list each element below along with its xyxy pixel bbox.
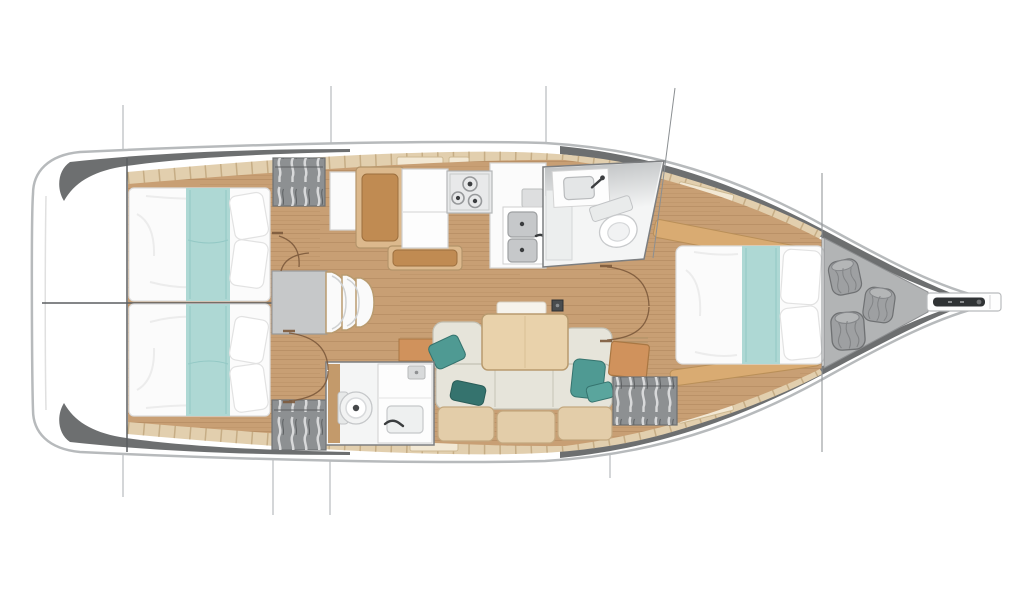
mast-post [552, 300, 563, 311]
seat-cushion [362, 174, 398, 241]
galley-appliance [522, 189, 543, 207]
toilet-drain [353, 405, 359, 411]
pillow [228, 191, 269, 240]
hanging-locker-starboard [272, 400, 326, 450]
pillow [228, 315, 269, 364]
forward-head-vanity [552, 169, 610, 208]
aft-berth-port [129, 188, 270, 301]
companionway [272, 271, 374, 334]
vanity-basin [563, 176, 594, 200]
fender-bag [862, 286, 896, 324]
galley-sinks [503, 207, 545, 264]
chart-seat [356, 167, 404, 248]
trim-segment [558, 407, 612, 440]
stove [447, 171, 492, 213]
galley-cabinet [330, 172, 358, 230]
forward-berth [676, 246, 824, 364]
trim-segment [497, 411, 555, 443]
anchor-pin [977, 300, 982, 305]
bench-cushion [393, 250, 457, 266]
corridor-seat [608, 338, 649, 379]
galley-bench [388, 246, 462, 270]
forward-head [543, 161, 664, 267]
bowsprit [927, 293, 1001, 311]
fender-bag [830, 311, 866, 351]
vent-dot [415, 371, 419, 375]
bed-runner [742, 246, 780, 364]
pillow [779, 305, 822, 361]
trim-segment [438, 407, 494, 441]
wardrobe-clothes [273, 158, 325, 206]
sofa-base-trim [438, 407, 612, 443]
sink-drain [520, 248, 524, 252]
pillow [229, 363, 269, 413]
hanging-locker-forward [613, 377, 677, 425]
hanging-locker-port [273, 158, 325, 206]
wardrobe-clothes [272, 400, 326, 450]
refrigerator-counter [402, 169, 448, 248]
aft-head [326, 362, 434, 445]
mast-dot [556, 304, 560, 308]
engine-box [272, 271, 327, 334]
yacht-floor-plan [0, 0, 1024, 600]
bed-runner [186, 188, 230, 301]
wardrobe-clothes [613, 377, 677, 425]
pillow [780, 249, 822, 306]
bed-runner [186, 304, 230, 416]
table-leaf [497, 302, 546, 315]
aft-head-toilet [338, 392, 372, 424]
seat-cushion [608, 341, 649, 379]
aft-head-vanity [378, 364, 432, 443]
aft-berth-starboard [129, 304, 270, 416]
yacht-floor-plan-canvas [0, 0, 1024, 600]
sink-drain [520, 222, 524, 226]
pillow [229, 239, 269, 289]
